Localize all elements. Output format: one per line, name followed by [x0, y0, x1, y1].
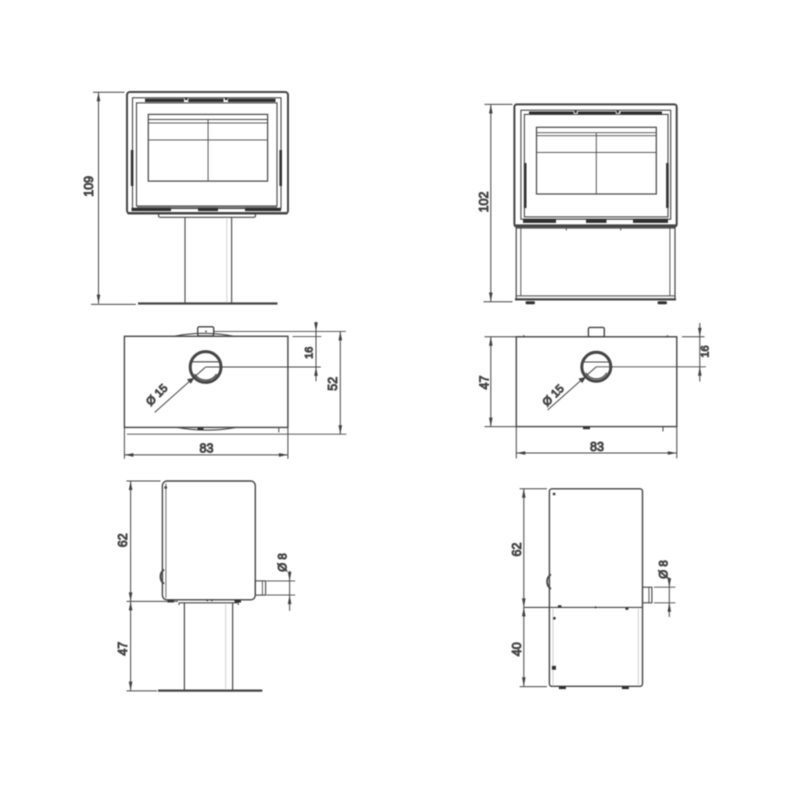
svg-text:62: 62	[510, 543, 524, 557]
svg-text:109: 109	[82, 176, 96, 197]
svg-text:Ø 8: Ø 8	[658, 560, 670, 579]
svg-text:47: 47	[477, 376, 491, 390]
svg-text:16: 16	[304, 347, 316, 359]
svg-text:47: 47	[116, 642, 130, 656]
svg-text:62: 62	[116, 533, 130, 547]
svg-text:40: 40	[510, 642, 524, 656]
svg-text:83: 83	[590, 440, 604, 454]
svg-text:52: 52	[326, 377, 340, 391]
svg-text:16: 16	[700, 345, 712, 357]
svg-text:Ø 8: Ø 8	[277, 553, 289, 572]
svg-text:102: 102	[477, 192, 491, 213]
svg-text:83: 83	[200, 442, 214, 456]
svg-text:Ø 15: Ø 15	[144, 382, 170, 408]
